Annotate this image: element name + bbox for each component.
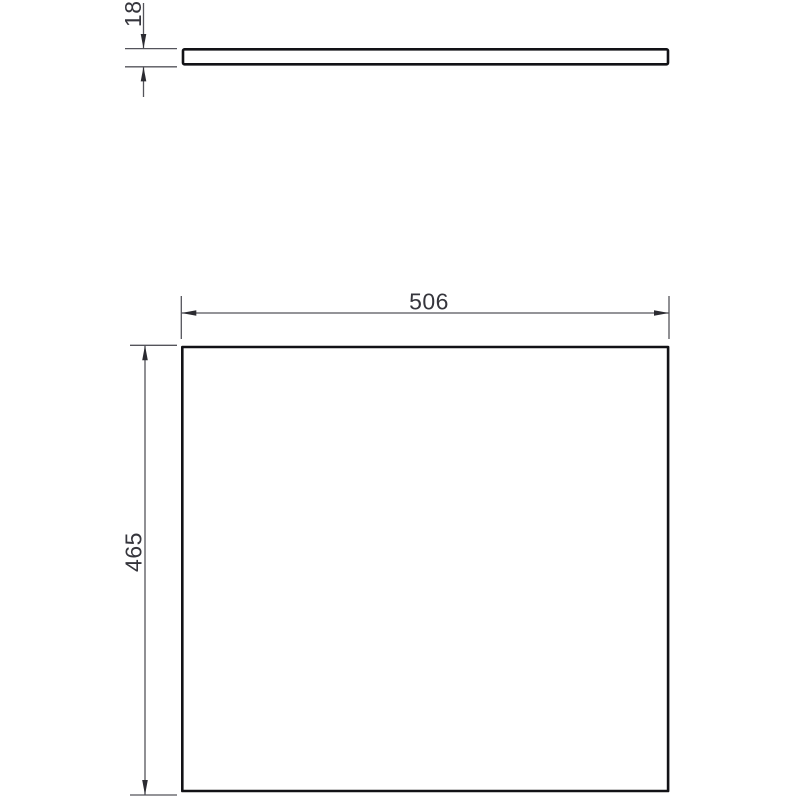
height-dimension: 465 xyxy=(121,345,178,795)
arrowhead-up-icon xyxy=(141,67,147,82)
arrowhead-right-icon xyxy=(654,310,669,316)
width-dimension-label: 506 xyxy=(409,289,449,315)
arrowhead-down-icon xyxy=(142,780,148,795)
technical-drawing-page: 18 506 465 xyxy=(0,0,800,800)
thickness-dimension: 18 xyxy=(120,1,177,97)
arrowhead-down-icon xyxy=(141,34,147,49)
arrowhead-up-icon xyxy=(142,345,148,360)
panel-front-view-outline xyxy=(182,347,668,791)
panel-side-view-outline xyxy=(183,49,668,64)
arrowhead-left-icon xyxy=(181,310,196,316)
thickness-dimension-label: 18 xyxy=(120,1,146,28)
height-dimension-label: 465 xyxy=(121,532,147,572)
width-dimension: 506 xyxy=(181,289,669,340)
panel-drawing: 18 506 465 xyxy=(0,0,800,800)
